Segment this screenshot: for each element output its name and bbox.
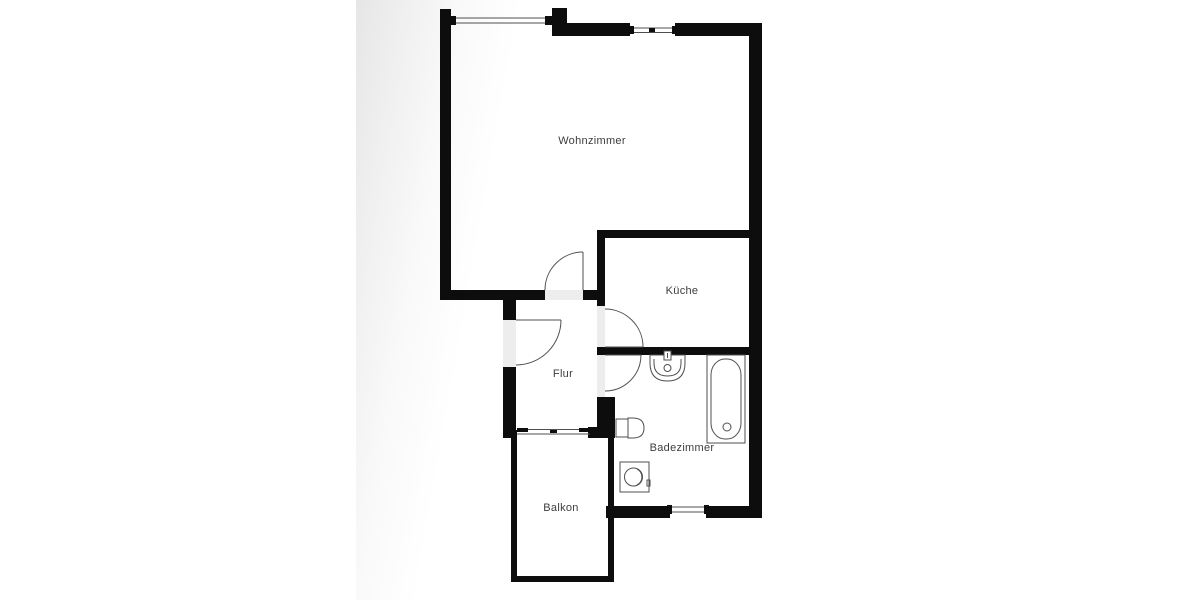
room-label-kueche: Küche (666, 285, 699, 297)
kueche-door-icon (605, 309, 643, 347)
bathtub-icon (707, 355, 745, 443)
badezimmer-window-icon (667, 505, 709, 514)
washing-machine-icon (620, 462, 650, 492)
room-label-wohnzimmer: Wohnzimmer (558, 135, 626, 147)
top-right-window-icon (628, 23, 678, 36)
room-label-balkon: Balkon (543, 502, 578, 514)
floorplan-canvas: Wohnzimmer Küche Flur Badezimmer Balkon (356, 0, 770, 600)
washbasin-icon (650, 351, 685, 381)
room-label-badezimmer: Badezimmer (650, 442, 715, 454)
entrance-door-icon (516, 320, 561, 365)
badezimmer-door-icon (605, 355, 641, 391)
toilet-icon (616, 418, 644, 438)
wohnzimmer-door-icon (545, 252, 583, 290)
balcony-door-window-icon (517, 428, 590, 434)
top-left-window-icon (448, 16, 553, 25)
room-label-flur: Flur (553, 368, 573, 380)
